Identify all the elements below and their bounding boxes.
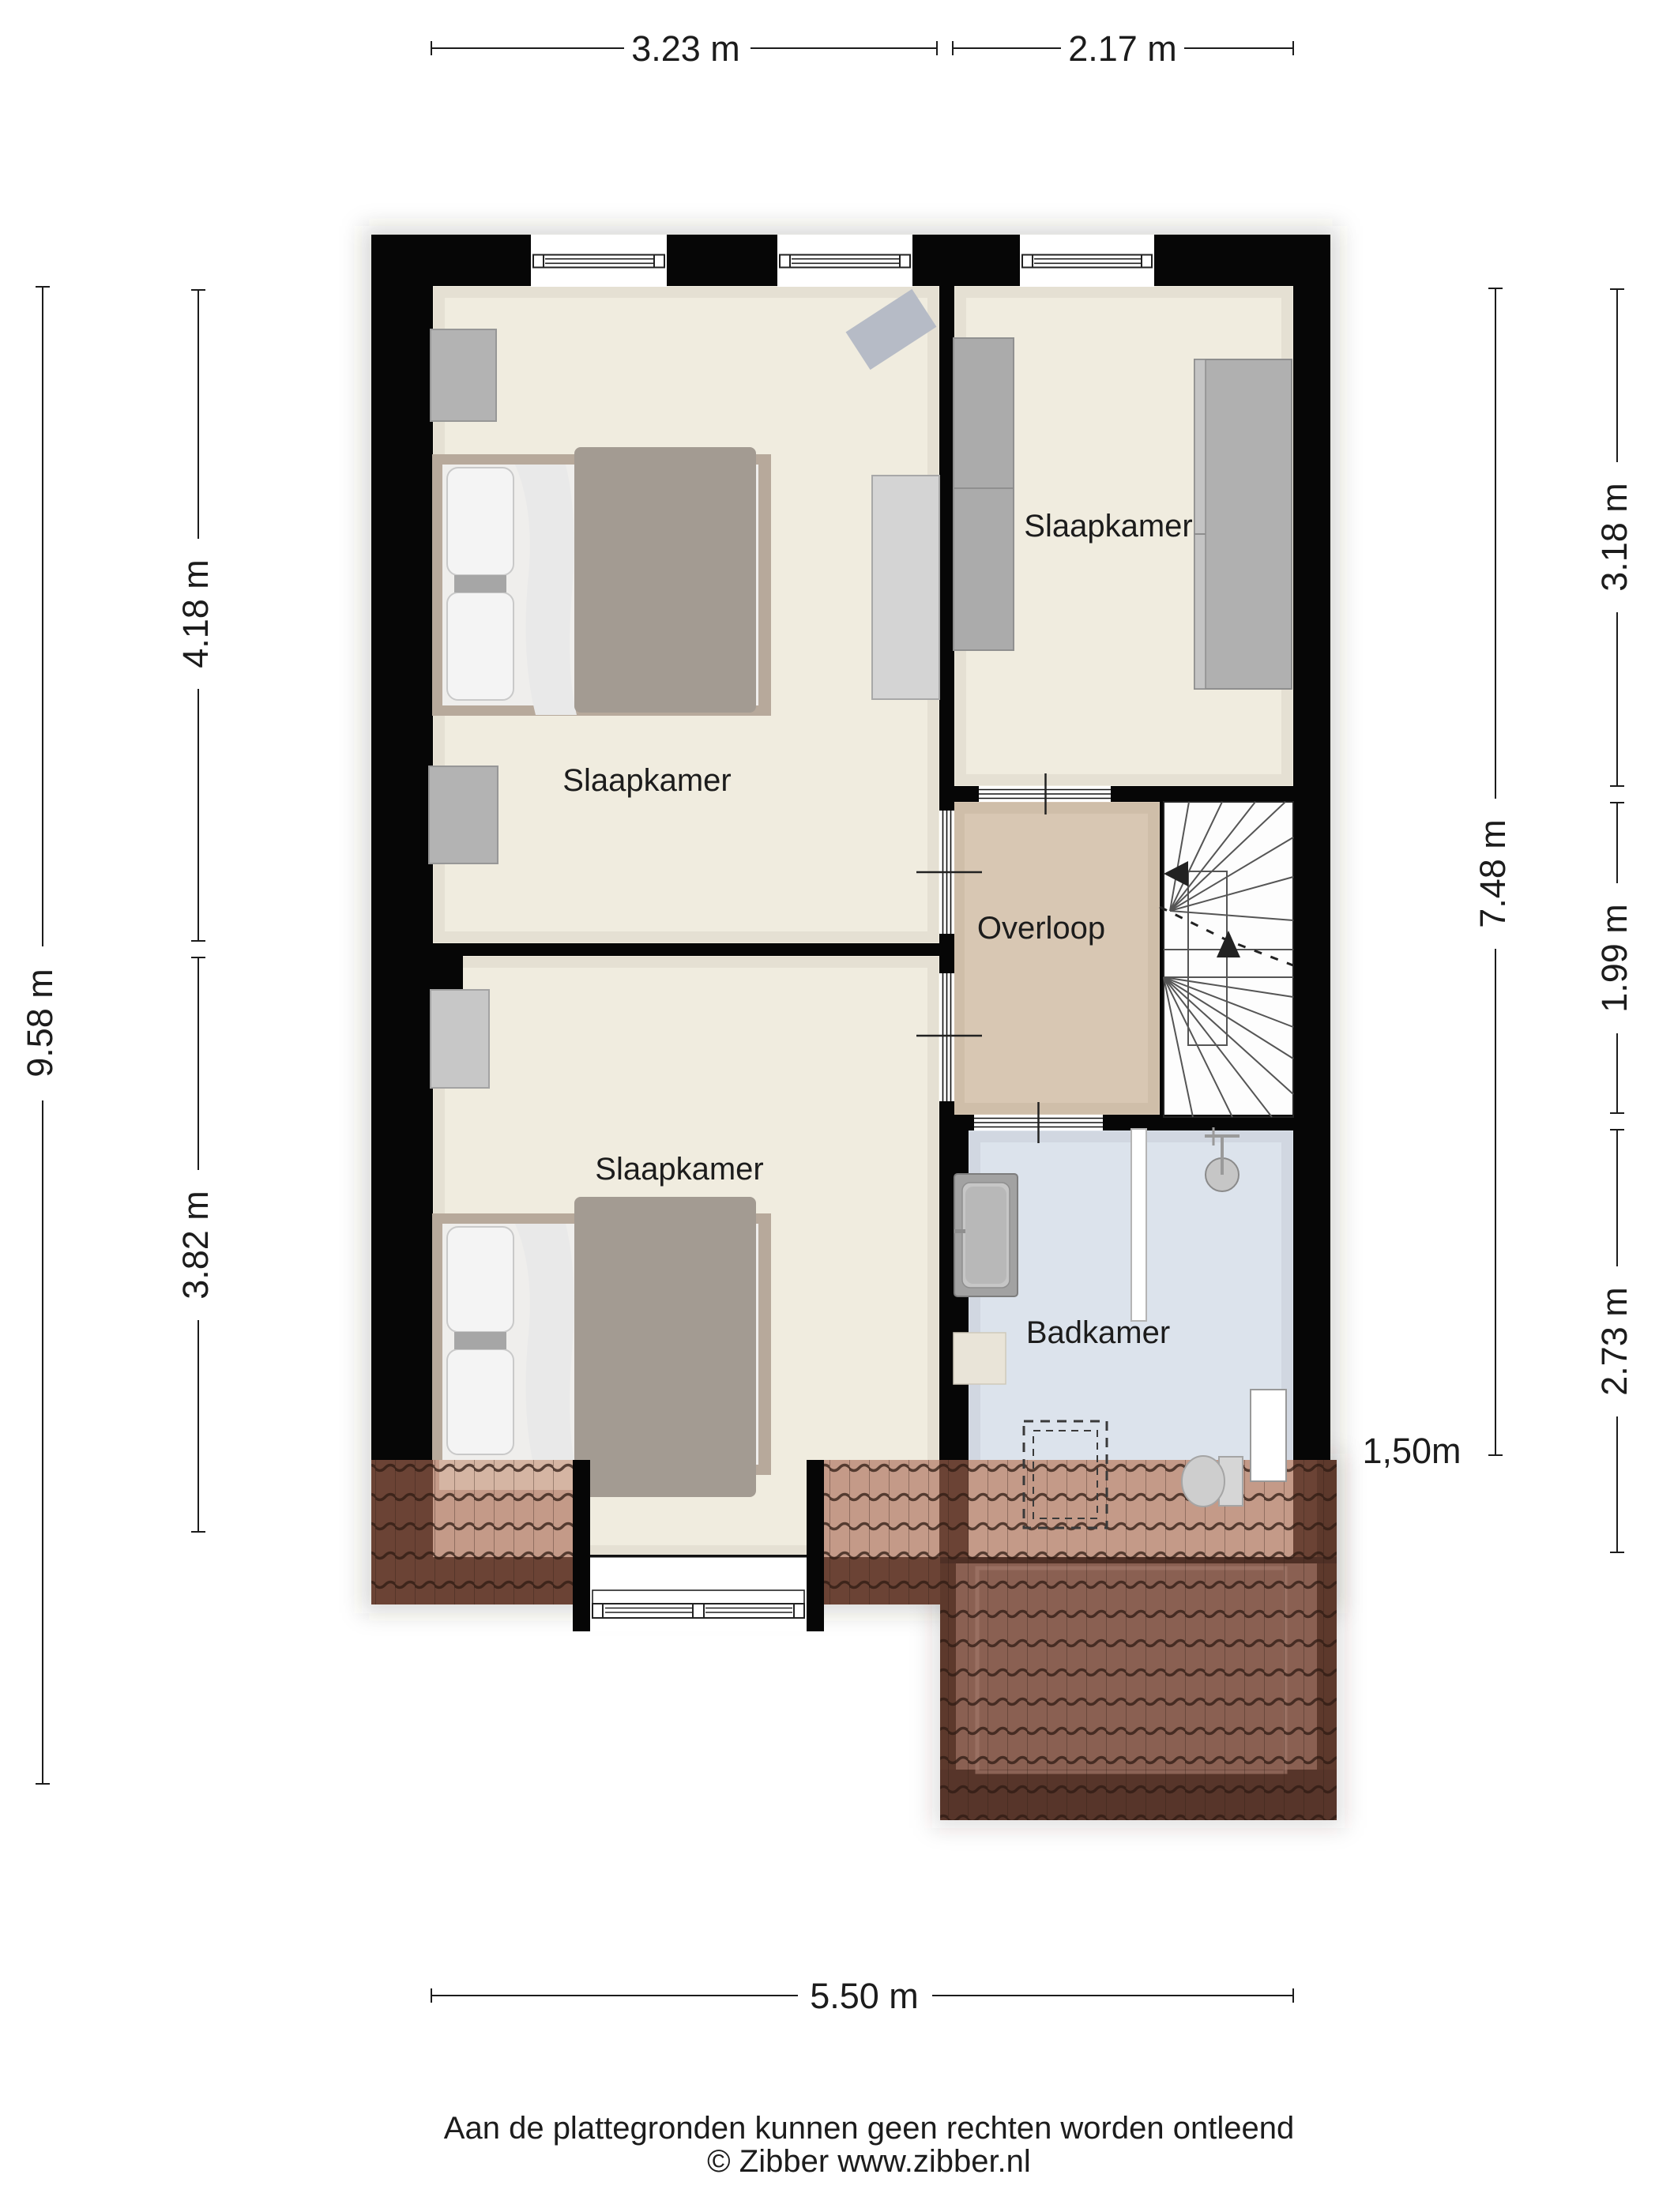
svg-text:2.73 m: 2.73 m xyxy=(1594,1287,1635,1396)
svg-text:2.17 m: 2.17 m xyxy=(1068,28,1177,69)
svg-text:3.23 m: 3.23 m xyxy=(631,28,740,69)
svg-text:Slaapkamer: Slaapkamer xyxy=(1024,509,1192,544)
svg-text:3.82 m: 3.82 m xyxy=(175,1191,216,1300)
svg-text:Overloop: Overloop xyxy=(977,911,1105,946)
svg-text:Aan de plattegronden kunnen ge: Aan de plattegronden kunnen geen rechten… xyxy=(444,2111,1294,2146)
svg-text:Badkamer: Badkamer xyxy=(1026,1315,1170,1350)
svg-text:7.48 m: 7.48 m xyxy=(1473,819,1513,928)
svg-text:3.18 m: 3.18 m xyxy=(1594,483,1635,592)
svg-text:5.50 m: 5.50 m xyxy=(810,1976,919,2016)
svg-text:Slaapkamer: Slaapkamer xyxy=(562,763,731,798)
svg-text:© Zibber www.zibber.nl: © Zibber www.zibber.nl xyxy=(707,2144,1031,2179)
svg-text:1,50m: 1,50m xyxy=(1362,1431,1461,1471)
svg-text:Slaapkamer: Slaapkamer xyxy=(595,1152,763,1187)
svg-text:4.18 m: 4.18 m xyxy=(175,559,216,668)
svg-text:9.58 m: 9.58 m xyxy=(20,969,60,1078)
svg-text:1.99 m: 1.99 m xyxy=(1594,904,1635,1013)
